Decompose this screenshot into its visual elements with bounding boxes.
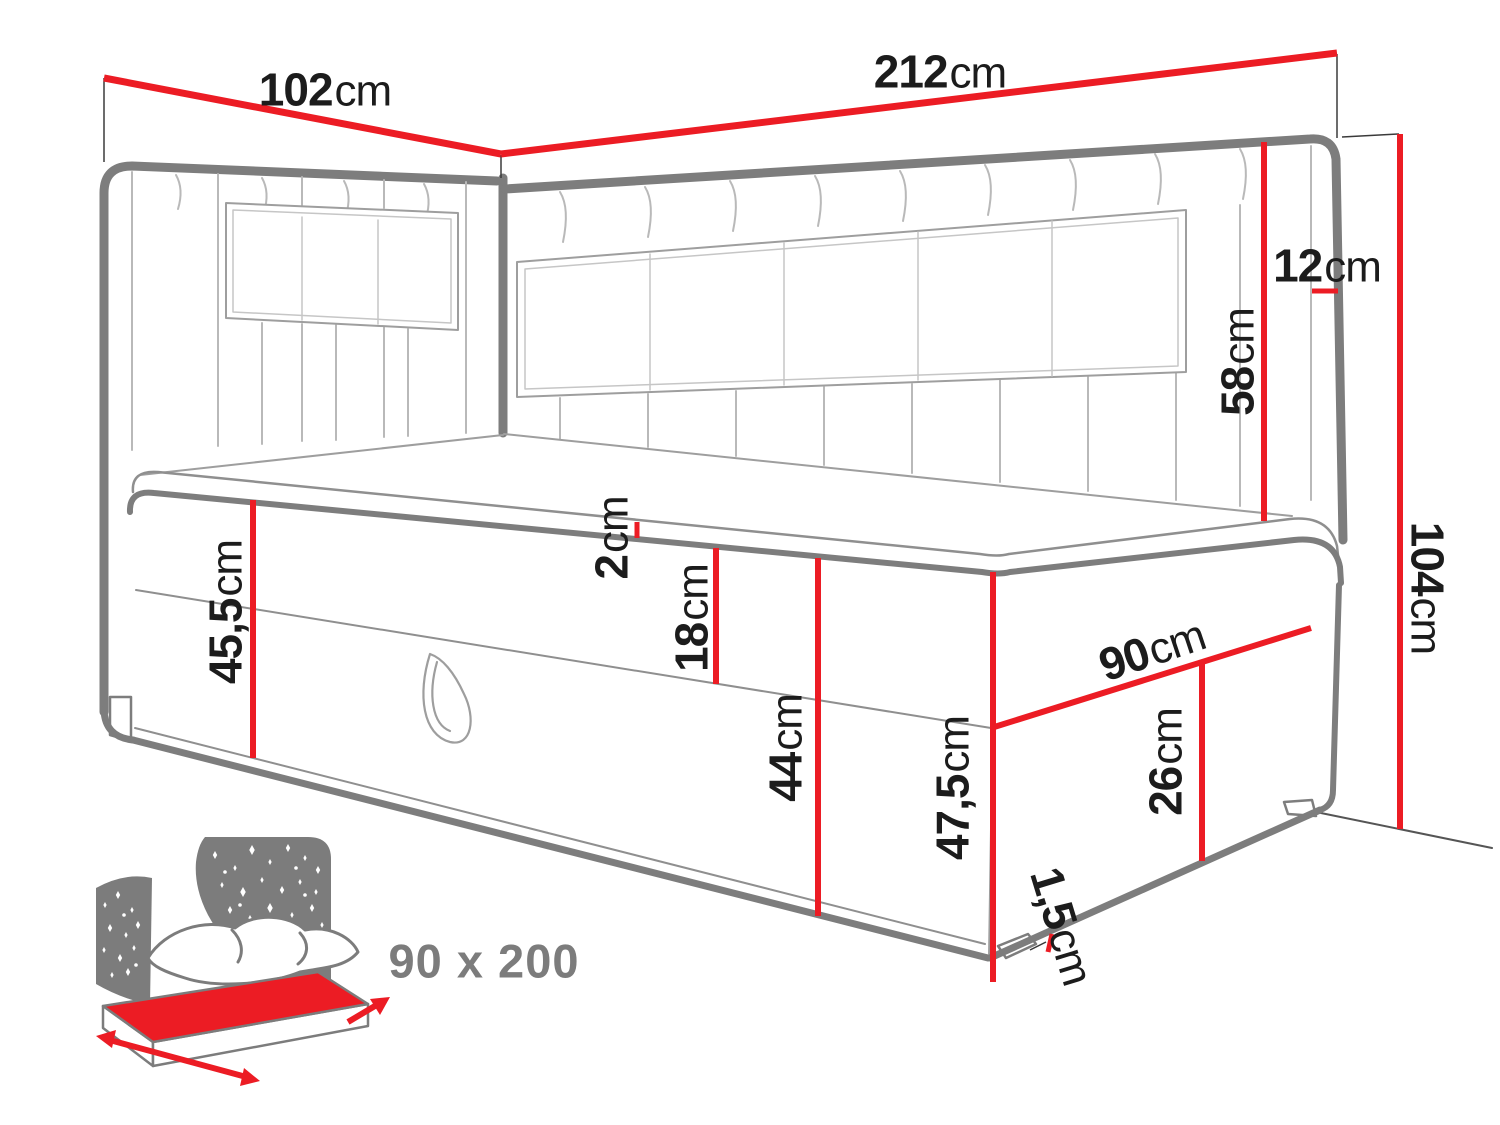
dim-label-212: 212cm	[874, 49, 1006, 96]
dim-label-18: 18cm	[669, 564, 716, 672]
icon-small-panel	[96, 876, 152, 1005]
dim-label-102: 102cm	[259, 67, 391, 114]
dim-label-47-5: 47,5cm	[930, 716, 977, 860]
dim-label-2: 2cm	[589, 496, 636, 579]
diagram-canvas: 102cm 212cm 12cm 58cm 104cm 2cm 18cm 45,…	[0, 0, 1500, 1125]
handle-loop	[423, 654, 470, 743]
floor-line	[1316, 812, 1492, 848]
dim-label-44: 44cm	[763, 694, 810, 802]
mattress-size-label: 90 x 200	[389, 934, 580, 989]
dim-label-104: 104cm	[1404, 522, 1451, 654]
dim-label-12: 12cm	[1273, 243, 1381, 290]
base-top-edge	[130, 493, 1341, 583]
mattress-size-icon	[96, 837, 390, 1086]
right-headboard-niche	[517, 210, 1186, 397]
dim-label-58: 58cm	[1215, 308, 1262, 416]
left-headboard-niche	[226, 203, 458, 330]
left-headboard	[104, 166, 497, 712]
dim-label-26: 26cm	[1143, 708, 1190, 816]
dim-label-45-5: 45,5cm	[203, 540, 250, 684]
drawer-seam	[136, 590, 991, 728]
